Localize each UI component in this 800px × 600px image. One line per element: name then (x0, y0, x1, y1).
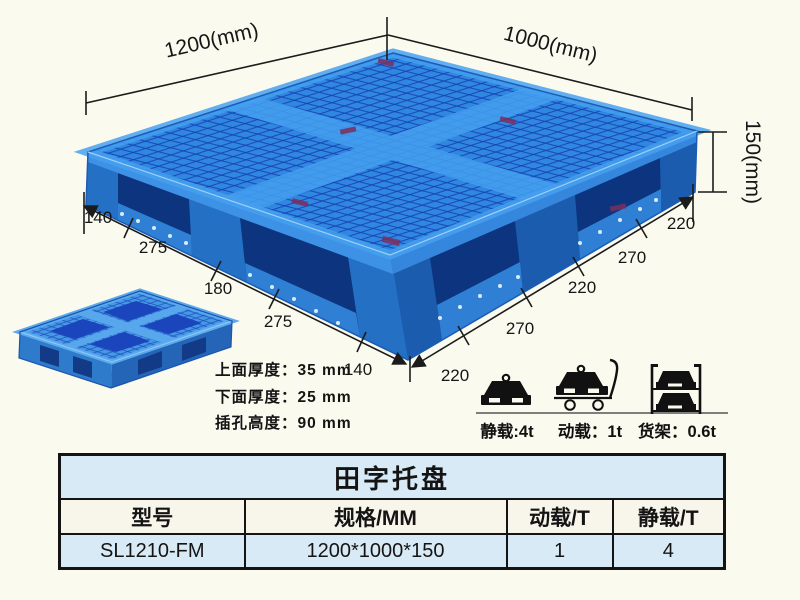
dim-width-label: 1200(mm) (162, 19, 260, 63)
spec-table: 田字托盘 型号 规格/MM 动载/T 静载/T SL1210-FM 1200*1… (58, 453, 726, 570)
spec-table-title-row: 田字托盘 (60, 455, 725, 500)
dim-depth-label: 1000(mm) (501, 22, 599, 67)
thickness-notes: 上面厚度：35 mm 下面厚度：25 mm 插孔高度：90 mm (215, 360, 352, 432)
static-load-label: 静载:4t (480, 421, 534, 441)
note-bottom-thickness: 下面厚度：25 mm (215, 387, 352, 406)
left-chain-seg-1: 140 (84, 208, 112, 227)
static-load-weight-icon (481, 375, 531, 405)
header-dynamic-load: 动载/T (507, 499, 613, 534)
header-static-load: 静载/T (613, 499, 725, 534)
right-chain-seg-4: 270 (618, 248, 646, 267)
note-top-thickness: 上面厚度：35 mm (215, 360, 352, 379)
spec-table-title: 田字托盘 (60, 455, 725, 500)
header-spec: 规格/MM (245, 499, 507, 534)
product-sheet-pallet: { "colors": { "background": "#fafaef", "… (0, 0, 800, 600)
dim-height-label: 150(mm) (741, 120, 764, 204)
header-model: 型号 (60, 499, 245, 534)
left-chain-seg-3: 180 (204, 279, 232, 298)
rack-load-shelf-icon (652, 364, 700, 414)
cell-model: SL1210-FM (60, 534, 245, 569)
cell-static-load: 4 (613, 534, 725, 569)
spec-table-header-row: 型号 规格/MM 动载/T 静载/T (60, 499, 725, 534)
spec-table-data-row: SL1210-FM 1200*1000*150 1 4 (60, 534, 725, 569)
cell-spec: 1200*1000*150 (245, 534, 507, 569)
dynamic-load-label: 动载：1t (558, 422, 623, 441)
note-fork-height: 插孔高度：90 mm (215, 413, 352, 432)
right-chain-seg-1: 220 (441, 366, 469, 385)
rack-load-label: 货架：0.6t (638, 421, 716, 441)
small-pallet-illustration (19, 291, 232, 388)
left-chain-seg-4: 275 (264, 312, 292, 331)
dynamic-load-trolley-icon (554, 360, 617, 410)
left-chain-seg-2: 275 (139, 238, 167, 257)
cell-dynamic-load: 1 (507, 534, 613, 569)
right-chain-seg-2: 270 (506, 319, 534, 338)
right-chain-seg-5: 220 (667, 214, 695, 233)
load-rating-icons: 静载:4t 动载：1t 货架：0.6t (476, 360, 728, 441)
right-chain-seg-3: 220 (568, 278, 596, 297)
